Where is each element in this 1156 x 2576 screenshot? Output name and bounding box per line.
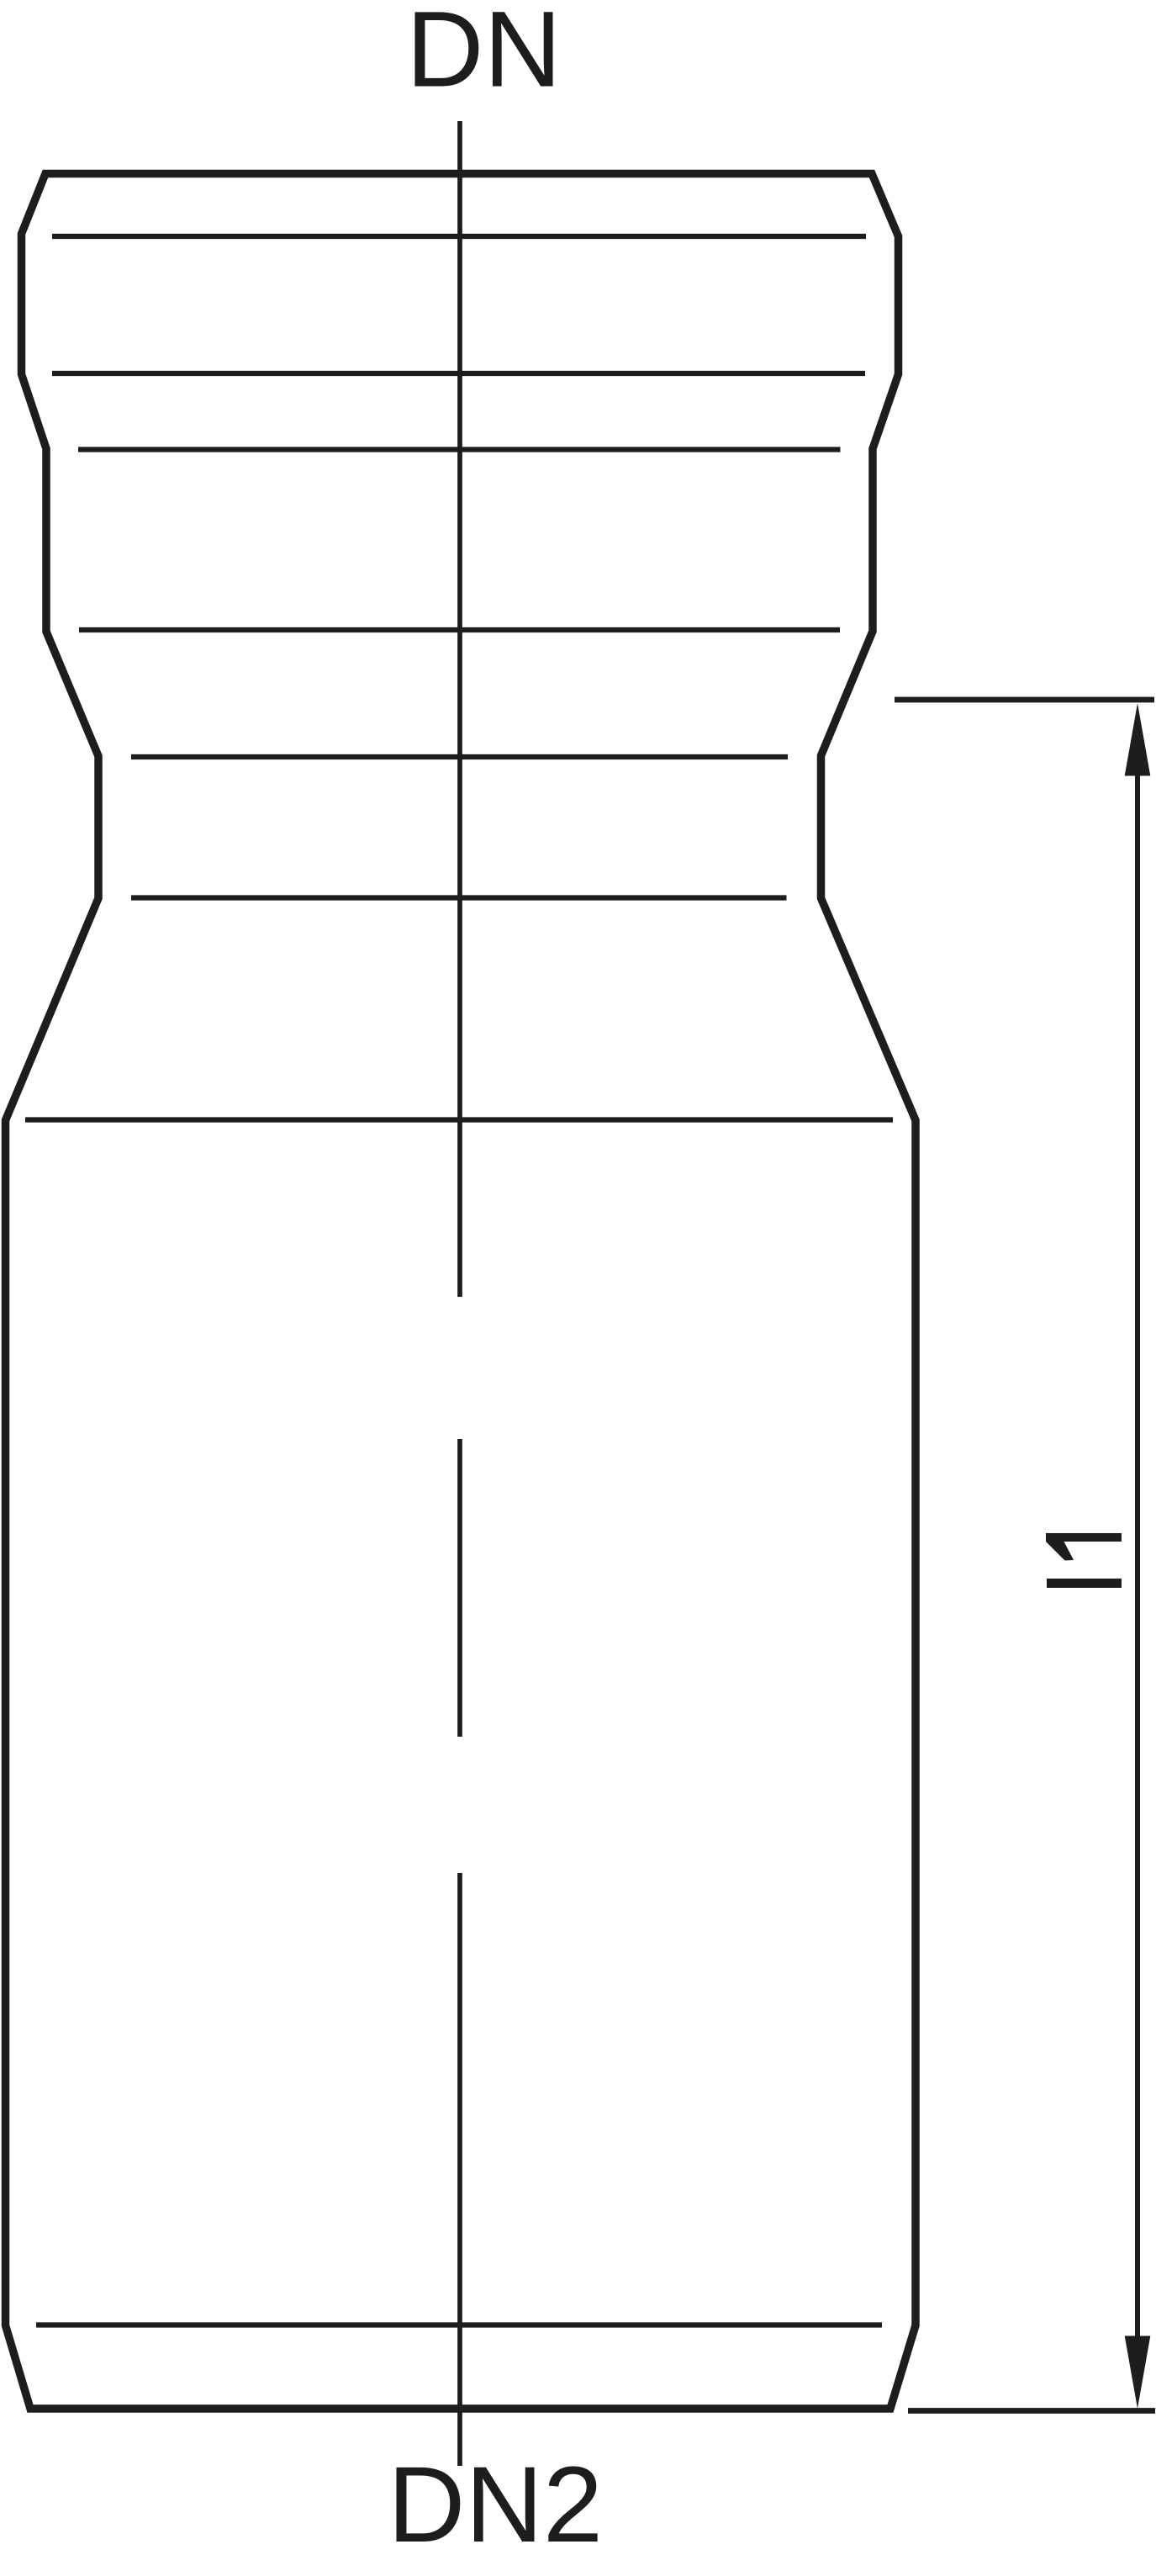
svg-text:DN: DN [406,0,562,110]
svg-text:DN2: DN2 [388,2445,603,2565]
